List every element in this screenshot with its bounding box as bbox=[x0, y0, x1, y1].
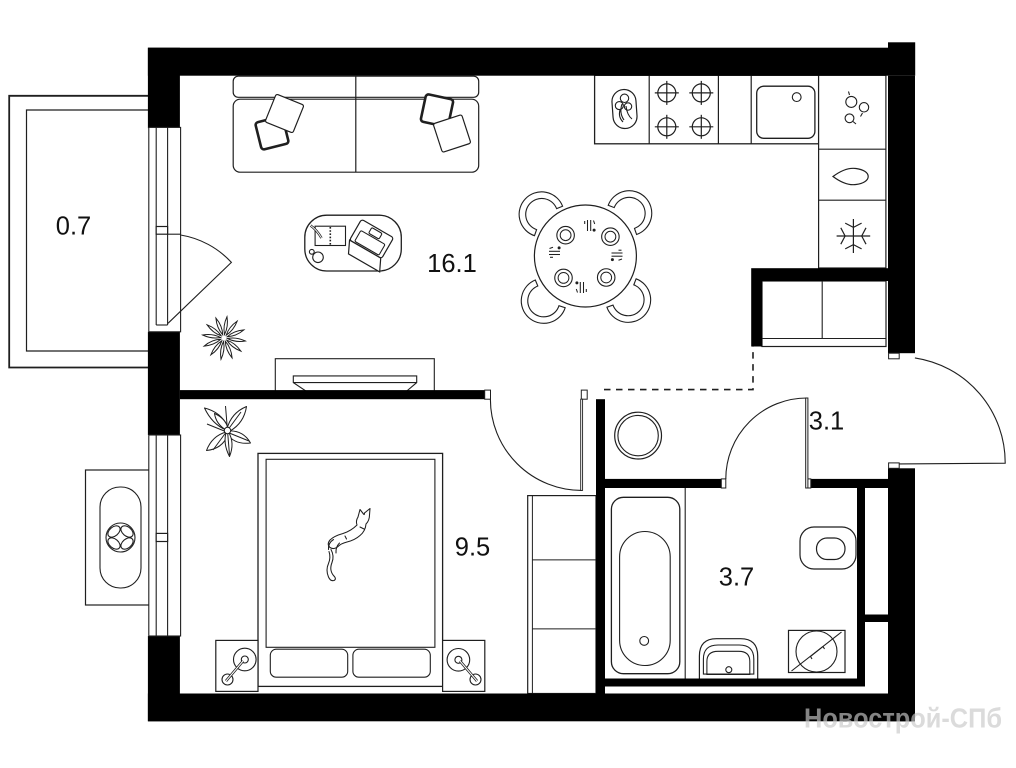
svg-text:Новострой-СПб: Новострой-СПб bbox=[804, 703, 1002, 734]
svg-text:0.7: 0.7 bbox=[56, 213, 91, 241]
svg-text:16.1: 16.1 bbox=[427, 250, 477, 278]
svg-text:3.1: 3.1 bbox=[809, 408, 844, 436]
svg-text:3.7: 3.7 bbox=[719, 564, 754, 592]
svg-text:9.5: 9.5 bbox=[455, 534, 490, 562]
